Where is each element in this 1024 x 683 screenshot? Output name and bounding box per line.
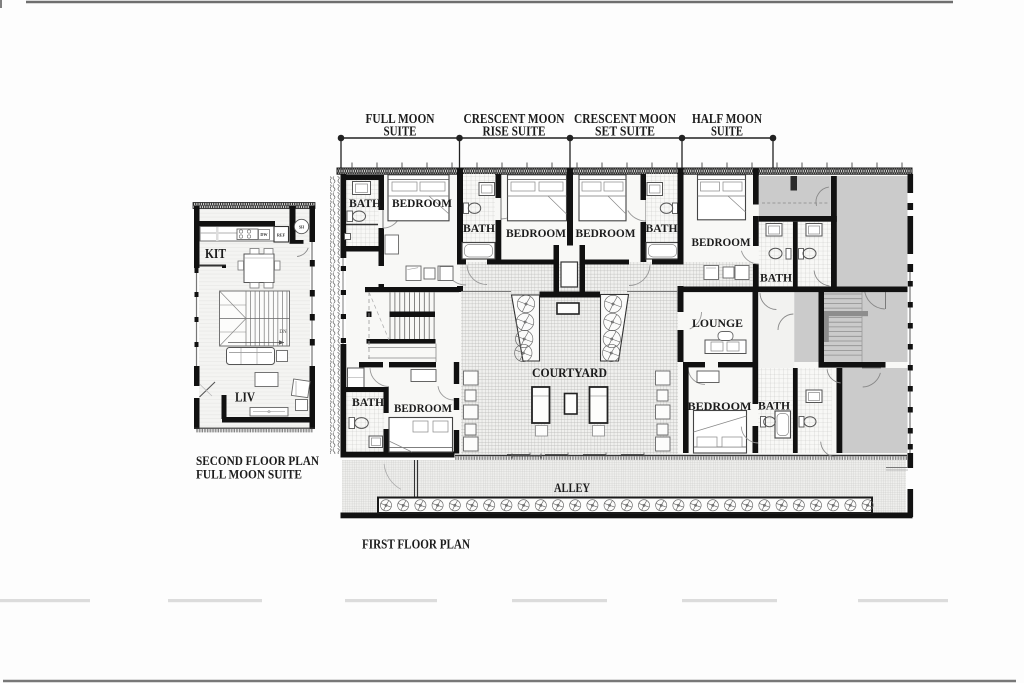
svg-text:BATH: BATH — [352, 395, 385, 409]
svg-text:COURTYARD: COURTYARD — [532, 366, 607, 380]
svg-text:BATH: BATH — [349, 196, 382, 210]
svg-text:REF: REF — [277, 233, 286, 238]
svg-text:LOUNGE: LOUNGE — [692, 316, 743, 330]
svg-text:ALLEY: ALLEY — [554, 481, 590, 495]
svg-text:BEDROOM: BEDROOM — [394, 401, 452, 415]
svg-text:BEDROOM: BEDROOM — [392, 196, 452, 210]
svg-text:BATH: BATH — [758, 399, 791, 413]
svg-text:BEDROOM: BEDROOM — [506, 226, 566, 240]
svg-text:FULL MOON SUITE: FULL MOON SUITE — [196, 467, 302, 482]
svg-text:BEDROOM: BEDROOM — [692, 235, 751, 249]
svg-text:SH: SH — [299, 225, 305, 230]
svg-text:SET SUITE: SET SUITE — [595, 125, 655, 140]
svg-text:BATH: BATH — [646, 221, 679, 235]
svg-text:LIV: LIV — [235, 390, 255, 405]
svg-text:BEDROOM: BEDROOM — [576, 226, 636, 240]
svg-text:BATH: BATH — [463, 221, 496, 235]
svg-text:BATH: BATH — [760, 271, 793, 285]
svg-text:FIRST FLOOR PLAN: FIRST FLOOR PLAN — [362, 537, 470, 552]
svg-text:DN: DN — [279, 330, 287, 335]
svg-text:SUITE: SUITE — [711, 125, 743, 140]
svg-text:DW: DW — [260, 232, 268, 237]
svg-text:KIT: KIT — [205, 246, 226, 261]
svg-text:RISE SUITE: RISE SUITE — [483, 125, 546, 140]
svg-text:SUITE: SUITE — [384, 125, 417, 140]
